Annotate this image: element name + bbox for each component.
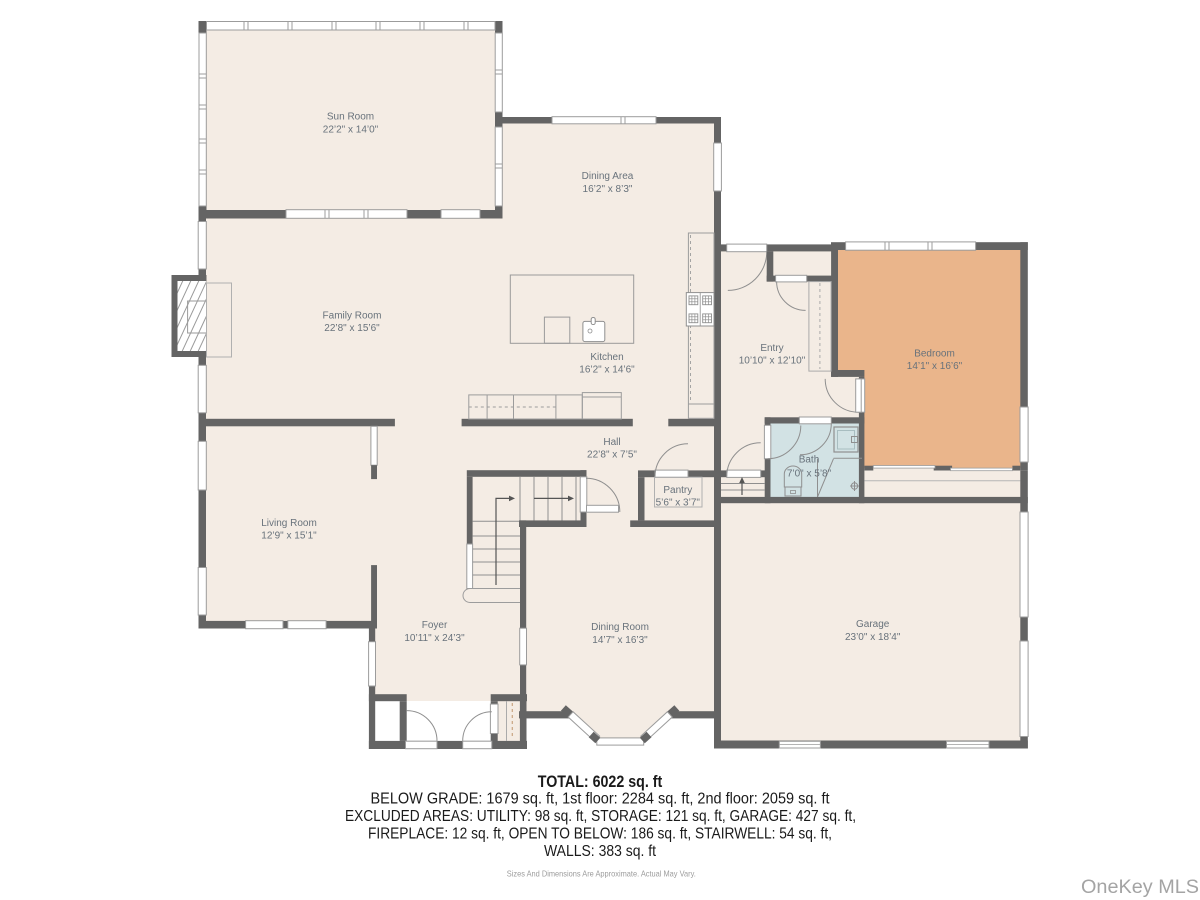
svg-text:5’6" x 3’7": 5’6" x 3’7"	[656, 498, 701, 509]
svg-text:7’0" x 5’8": 7’0" x 5’8"	[787, 469, 832, 480]
svg-text:Bath: Bath	[799, 455, 820, 466]
svg-text:Hall: Hall	[603, 437, 620, 448]
svg-text:BELOW GRADE: 1679 sq. ft, 1st: BELOW GRADE: 1679 sq. ft, 1st floor: 228…	[371, 791, 831, 808]
svg-text:10’10" x 12’10": 10’10" x 12’10"	[739, 356, 806, 367]
svg-text:EXCLUDED AREAS: UTILITY: 98 sq: EXCLUDED AREAS: UTILITY: 98 sq. ft, STOR…	[345, 808, 856, 825]
svg-text:Living Room: Living Room	[261, 518, 317, 529]
svg-text:14’1" x 16’6": 14’1" x 16’6"	[907, 361, 963, 372]
svg-text:Bedroom: Bedroom	[914, 349, 955, 360]
svg-text:16’2" x 14’6": 16’2" x 14’6"	[579, 365, 635, 376]
svg-text:12’9" x 15’1": 12’9" x 15’1"	[261, 531, 317, 542]
svg-text:22’2" x 14’0": 22’2" x 14’0"	[323, 125, 379, 136]
svg-text:Sizes And Dimensions Are Appro: Sizes And Dimensions Are Approximate. Ac…	[507, 868, 696, 878]
svg-text:Dining Area: Dining Area	[582, 171, 634, 182]
svg-text:WALLS: 383 sq. ft: WALLS: 383 sq. ft	[544, 843, 656, 860]
svg-text:TOTAL: 6022 sq. ft: TOTAL: 6022 sq. ft	[538, 772, 663, 791]
svg-text:22’8" x 7’5": 22’8" x 7’5"	[587, 450, 637, 461]
svg-text:Kitchen: Kitchen	[590, 352, 623, 363]
svg-text:Family Room: Family Room	[323, 311, 382, 322]
svg-text:Pantry: Pantry	[663, 485, 692, 496]
svg-text:OneKey MLS: OneKey MLS	[1081, 877, 1199, 898]
svg-text:FIREPLACE: 12 sq. ft, OPEN TO: FIREPLACE: 12 sq. ft, OPEN TO BELOW: 186…	[368, 826, 832, 843]
svg-text:Entry: Entry	[760, 343, 783, 354]
svg-text:16’2" x 8’3": 16’2" x 8’3"	[583, 184, 633, 195]
svg-text:23’0" x 18’4": 23’0" x 18’4"	[845, 632, 901, 643]
svg-text:Dining Room: Dining Room	[591, 622, 649, 633]
svg-text:10’11" x 24’3": 10’11" x 24’3"	[404, 633, 465, 644]
svg-text:Sun Room: Sun Room	[327, 112, 374, 123]
svg-text:Foyer: Foyer	[422, 620, 448, 631]
svg-text:14’7" x 16’3": 14’7" x 16’3"	[592, 635, 648, 646]
svg-text:22’8" x 15’6": 22’8" x 15’6"	[324, 323, 380, 334]
svg-text:Garage: Garage	[856, 619, 890, 630]
